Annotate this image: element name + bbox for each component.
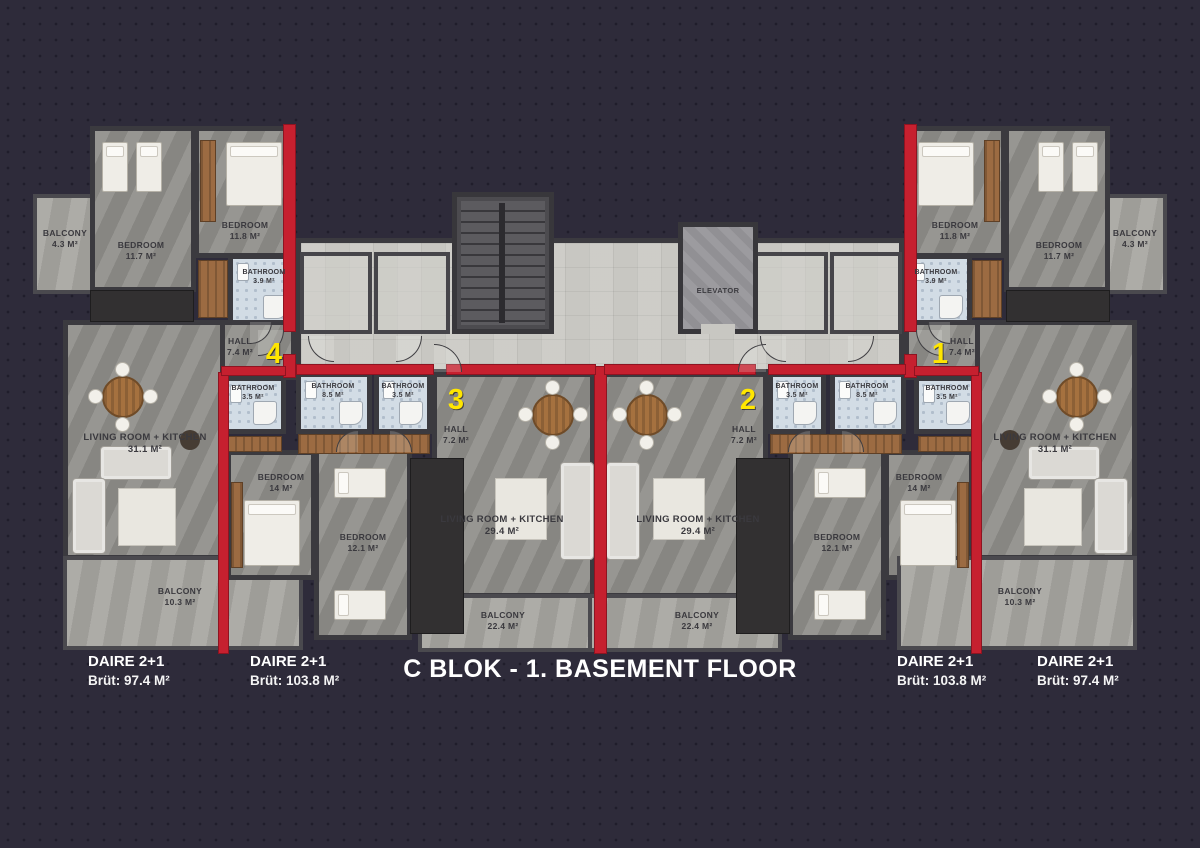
room-label: BATHROOM3.5 M² bbox=[231, 384, 274, 402]
room-label: BALCONY4.3 M² bbox=[1113, 228, 1157, 250]
room-label: BATHROOM3.5 M² bbox=[925, 384, 968, 402]
sofa bbox=[1094, 478, 1128, 554]
room-label: BEDROOM14 M² bbox=[896, 472, 943, 494]
room-label: BEDROOM11.8 M² bbox=[222, 220, 269, 242]
unit-number-4: 4 bbox=[266, 338, 282, 371]
chair bbox=[143, 389, 158, 404]
unit-number-1: 1 bbox=[932, 338, 948, 371]
chair bbox=[115, 362, 130, 377]
room-label: BATHROOM3.5 M² bbox=[775, 382, 818, 400]
wardrobe-u3 bbox=[226, 436, 282, 452]
room-label: BATHROOM8.5 M² bbox=[311, 382, 354, 400]
sofa bbox=[72, 478, 106, 554]
dining-table bbox=[88, 362, 158, 432]
single-bed bbox=[334, 468, 386, 498]
red-wall bbox=[296, 364, 434, 375]
sofa bbox=[560, 462, 594, 560]
room-label: LIVING ROOM + KITCHEN31.1 M² bbox=[83, 432, 206, 457]
room-label: HALL7.4 M² bbox=[227, 336, 253, 358]
chair bbox=[88, 389, 103, 404]
sofa bbox=[606, 462, 640, 560]
double-bed bbox=[918, 142, 974, 206]
room-label: BEDROOM11.7 M² bbox=[1036, 240, 1083, 262]
chair bbox=[1069, 362, 1084, 377]
room-label: BALCONY10.3 M² bbox=[998, 586, 1042, 608]
page-title: C BLOK - 1. BASEMENT FLOOR bbox=[403, 655, 797, 684]
rug bbox=[1024, 488, 1082, 546]
room-label: BEDROOM14 M² bbox=[258, 472, 305, 494]
closet-u4-bedroom bbox=[200, 140, 216, 222]
unit-caption: DAIRE 2+1 Brüt: 97.4 M² bbox=[88, 652, 170, 690]
kitchen-counter-u1 bbox=[1006, 290, 1110, 322]
dining-table bbox=[1042, 362, 1112, 432]
room-label: BATHROOM8.5 M² bbox=[845, 382, 888, 400]
unit-number-3: 3 bbox=[448, 384, 464, 417]
closet-u2-bedroom bbox=[957, 482, 969, 568]
chair bbox=[518, 407, 533, 422]
chair bbox=[612, 407, 627, 422]
unit-number-2: 2 bbox=[740, 384, 756, 417]
chair bbox=[545, 380, 560, 395]
unit-caption: DAIRE 2+1 Brüt: 97.4 M² bbox=[1037, 652, 1119, 690]
table-top bbox=[1056, 376, 1098, 418]
single-bed bbox=[102, 142, 128, 192]
red-wall bbox=[218, 372, 229, 654]
elevator-door bbox=[701, 324, 735, 334]
unit-caption: DAIRE 2+1 Brüt: 103.8 M² bbox=[250, 652, 339, 690]
red-wall bbox=[283, 124, 296, 332]
room-label: BATHROOM3.9 M² bbox=[914, 268, 957, 286]
room-label: HALL7.2 M² bbox=[443, 424, 469, 446]
single-bed bbox=[1072, 142, 1098, 192]
red-wall bbox=[904, 124, 917, 332]
corridor-closet bbox=[300, 252, 372, 334]
chair bbox=[667, 407, 682, 422]
wardrobe-u4 bbox=[198, 260, 228, 318]
stair-rail bbox=[499, 203, 505, 323]
corridor-closet bbox=[830, 252, 902, 334]
chair bbox=[1097, 389, 1112, 404]
room-label: BALCONY10.3 M² bbox=[158, 586, 202, 608]
chair bbox=[639, 380, 654, 395]
room-label: HALL7.4 M² bbox=[949, 336, 975, 358]
room-label: HALL7.2 M² bbox=[731, 424, 757, 446]
table-top bbox=[102, 376, 144, 418]
elevator-label: ELEVATOR bbox=[697, 286, 740, 295]
room-label: BALCONY22.4 M² bbox=[481, 610, 525, 632]
chair bbox=[1069, 417, 1084, 432]
closet-u3-bedroom bbox=[231, 482, 243, 568]
room-label: LIVING ROOM + KITCHEN29.4 M² bbox=[440, 514, 563, 539]
room-label: BEDROOM11.7 M² bbox=[118, 240, 165, 262]
chair bbox=[115, 417, 130, 432]
room-label: BALCONY22.4 M² bbox=[675, 610, 719, 632]
room-label: LIVING ROOM + KITCHEN31.1 M² bbox=[993, 432, 1116, 457]
corridor-closet bbox=[374, 252, 450, 334]
single-bed bbox=[814, 590, 866, 620]
room-label: BEDROOM11.8 M² bbox=[932, 220, 979, 242]
red-wall bbox=[594, 366, 607, 654]
single-bed bbox=[814, 468, 866, 498]
kitchen-counter-u3 bbox=[410, 458, 464, 634]
room-label: BATHROOM3.9 M² bbox=[242, 268, 285, 286]
dining-table bbox=[612, 380, 682, 450]
single-bed bbox=[136, 142, 162, 192]
kitchen-counter-u2 bbox=[736, 458, 790, 634]
room-label: BEDROOM12.1 M² bbox=[814, 532, 861, 554]
wardrobe-u1 bbox=[972, 260, 1002, 318]
single-bed bbox=[1038, 142, 1064, 192]
rug bbox=[118, 488, 176, 546]
elevator bbox=[678, 222, 758, 334]
double-bed bbox=[244, 500, 300, 566]
dining-table bbox=[518, 380, 588, 450]
chair bbox=[573, 407, 588, 422]
chair bbox=[639, 435, 654, 450]
table-top bbox=[626, 394, 668, 436]
unit-caption: DAIRE 2+1 Brüt: 103.8 M² bbox=[897, 652, 986, 690]
red-wall bbox=[971, 372, 982, 654]
closet-u1-bedroom bbox=[984, 140, 1000, 222]
red-wall bbox=[768, 364, 906, 375]
kitchen-counter-u4 bbox=[90, 290, 194, 322]
room-label: BATHROOM3.5 M² bbox=[381, 382, 424, 400]
chair bbox=[1042, 389, 1057, 404]
red-wall bbox=[604, 364, 756, 375]
double-bed bbox=[226, 142, 282, 206]
room-label: BEDROOM12.1 M² bbox=[340, 532, 387, 554]
corridor-closet bbox=[752, 252, 828, 334]
room-label: LIVING ROOM + KITCHEN29.4 M² bbox=[636, 514, 759, 539]
red-wall bbox=[446, 364, 596, 375]
double-bed bbox=[900, 500, 956, 566]
wardrobe-u2 bbox=[918, 436, 974, 452]
chair bbox=[545, 435, 560, 450]
floor-plan-page: { "title": "C BLOK - 1. BASEMENT FLOOR",… bbox=[0, 0, 1200, 848]
table-top bbox=[532, 394, 574, 436]
room-label: BALCONY4.3 M² bbox=[43, 228, 87, 250]
single-bed bbox=[334, 590, 386, 620]
staircase bbox=[452, 192, 554, 334]
